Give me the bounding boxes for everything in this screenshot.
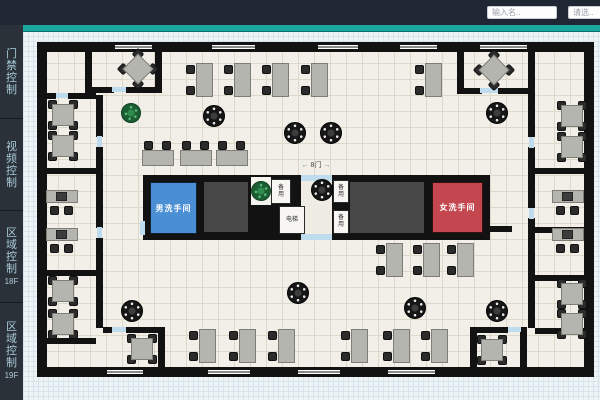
sidebar-item-zone-control-18f[interactable]: 区域控制 18F — [0, 211, 23, 303]
desk — [189, 328, 217, 364]
app-window: 门禁控制 视频控制 区域控制 18F 区域控制 19F 男洗手间 备用 电梯 备… — [0, 0, 600, 400]
chair — [341, 352, 350, 361]
wall — [96, 238, 103, 328]
desk — [186, 62, 214, 98]
door-mark — [97, 227, 102, 238]
chair — [376, 266, 385, 275]
wall — [158, 327, 165, 373]
table-top — [52, 313, 74, 335]
plant — [121, 103, 141, 123]
table-top — [561, 136, 583, 158]
round-table — [486, 300, 508, 322]
door-sign: ← 8门 → — [286, 160, 346, 170]
chair — [556, 206, 565, 215]
wall — [96, 95, 103, 137]
top-header-bar — [0, 0, 600, 25]
door-mark — [97, 136, 102, 147]
square-table — [477, 335, 507, 365]
wall — [47, 168, 96, 174]
mens-restroom-label: 男洗手间 — [151, 183, 196, 233]
chair — [301, 86, 310, 95]
window — [115, 44, 152, 50]
monitor — [562, 192, 573, 201]
chair — [64, 206, 73, 215]
chair — [262, 86, 271, 95]
table-top — [52, 104, 74, 126]
round-table — [320, 122, 342, 144]
wall — [85, 42, 92, 93]
square-table — [557, 132, 587, 162]
chair — [189, 331, 198, 340]
table-top — [278, 329, 295, 363]
table-top — [142, 150, 174, 166]
chair — [301, 65, 310, 74]
desk — [301, 62, 329, 98]
desk — [376, 242, 404, 278]
chair — [162, 141, 171, 150]
chair — [268, 352, 277, 361]
round-table — [486, 102, 508, 124]
table-top — [199, 329, 216, 363]
search-input[interactable] — [487, 6, 557, 19]
table-top — [52, 280, 74, 302]
room-utility-1: 备用 — [271, 179, 291, 204]
chair — [182, 141, 191, 150]
sidebar-item-label: 视频控制 — [6, 141, 18, 189]
pc-desk — [551, 228, 585, 256]
desk — [140, 141, 176, 167]
chair — [186, 65, 195, 74]
wall — [520, 327, 527, 373]
round-table — [121, 300, 143, 322]
wall — [528, 147, 535, 208]
chair — [570, 244, 579, 253]
sidebar-item-label: 区域控制 — [6, 321, 18, 369]
arrow-left-icon: ← — [302, 162, 309, 169]
sidebar-item-label: 门禁控制 — [6, 48, 18, 96]
room-womens-restroom[interactable]: 女洗手间 — [432, 182, 483, 233]
chair — [421, 331, 430, 340]
chair — [556, 244, 565, 253]
chair — [224, 86, 233, 95]
round-table — [284, 122, 306, 144]
table-top — [431, 329, 448, 363]
round-table — [311, 179, 333, 201]
wall — [490, 226, 512, 232]
door-mark — [112, 327, 126, 332]
door-mark — [140, 221, 145, 235]
room-utility-2: 备用 — [333, 180, 349, 203]
window — [208, 369, 250, 375]
utility-label: 备用 — [278, 185, 285, 199]
window — [298, 369, 340, 375]
lobby-door-bottom — [301, 234, 332, 240]
square-table — [557, 279, 587, 309]
chair — [229, 331, 238, 340]
wall — [535, 168, 585, 174]
sidebar-item-access-control[interactable]: 门禁控制 — [0, 25, 23, 119]
table-top — [52, 135, 74, 157]
sidebar-item-video-control[interactable]: 视频控制 — [0, 119, 23, 211]
window — [480, 44, 527, 50]
square-table — [48, 100, 78, 130]
desk — [447, 242, 475, 278]
desk — [383, 328, 411, 364]
square-table — [557, 309, 587, 339]
square-table — [48, 309, 78, 339]
window — [212, 44, 255, 50]
round-table — [404, 297, 426, 319]
chair — [189, 352, 198, 361]
table-top — [561, 313, 583, 335]
chair — [383, 331, 392, 340]
room-core-gray-left — [204, 182, 248, 232]
room-core-gray-right — [350, 182, 424, 233]
chair — [224, 65, 233, 74]
round-table — [287, 282, 309, 304]
chair — [341, 331, 350, 340]
table-top — [423, 243, 440, 277]
table-top — [386, 243, 403, 277]
desk — [214, 141, 250, 167]
table-top — [196, 63, 213, 97]
chair — [144, 141, 153, 150]
door-mark — [56, 93, 68, 98]
sidebar-item-label: 区域控制 — [6, 227, 18, 275]
room-elevator[interactable]: 电梯 — [279, 206, 305, 234]
desk — [224, 62, 252, 98]
square-table — [48, 276, 78, 306]
room-mens-restroom[interactable]: 男洗手间 — [150, 182, 197, 234]
sidebar-item-zone-control-19f[interactable]: 区域控制 19F — [0, 303, 23, 397]
sidebar-item-floor: 19F — [5, 371, 19, 380]
wall — [68, 93, 96, 99]
chair — [376, 245, 385, 254]
womens-restroom-label: 女洗手间 — [433, 183, 482, 232]
table-top — [561, 283, 583, 305]
chair — [186, 86, 195, 95]
wall — [528, 218, 535, 328]
chair — [218, 141, 227, 150]
window — [388, 369, 435, 375]
room-utility-3: 备用 — [333, 210, 349, 234]
chair — [413, 266, 422, 275]
window — [107, 369, 143, 375]
table-top — [481, 339, 503, 361]
wall — [126, 87, 162, 93]
monitor — [562, 230, 573, 239]
arrow-right-icon: → — [323, 162, 330, 169]
door-mark — [529, 208, 534, 219]
window — [400, 44, 437, 50]
table-top — [216, 150, 248, 166]
table-top — [561, 105, 583, 127]
utility-label: 备用 — [338, 185, 345, 199]
desk — [413, 242, 441, 278]
wall — [96, 147, 103, 228]
door-mark — [529, 137, 534, 148]
door-mark — [112, 87, 126, 92]
chair — [447, 266, 456, 275]
table-top — [272, 63, 289, 97]
desk — [268, 328, 296, 364]
select-input[interactable] — [568, 6, 600, 19]
door-sign-text: 8门 — [311, 162, 322, 169]
monitor — [56, 230, 67, 239]
pc-desk — [551, 190, 585, 218]
chair — [415, 65, 424, 74]
table-top — [131, 338, 153, 360]
desk — [415, 62, 443, 98]
chair — [200, 141, 209, 150]
chair — [413, 245, 422, 254]
wall — [528, 42, 535, 137]
pc-desk — [45, 190, 79, 218]
round-table — [203, 105, 225, 127]
chair — [268, 331, 277, 340]
table-top — [425, 63, 442, 97]
chair — [262, 65, 271, 74]
chair — [236, 141, 245, 150]
desk — [262, 62, 290, 98]
elevator-label: 电梯 — [286, 217, 298, 223]
square-table — [557, 101, 587, 131]
table-top — [311, 63, 328, 97]
desk — [421, 328, 449, 364]
table-top — [393, 329, 410, 363]
wall — [457, 88, 482, 94]
wall — [470, 327, 477, 373]
plant — [251, 181, 271, 201]
desk — [229, 328, 257, 364]
table-top — [180, 150, 212, 166]
chair — [229, 352, 238, 361]
chair — [447, 245, 456, 254]
table-top — [457, 243, 474, 277]
chair — [64, 244, 73, 253]
door-mark — [508, 327, 521, 332]
chair — [50, 206, 59, 215]
square-table — [48, 131, 78, 161]
wall — [44, 93, 56, 99]
monitor — [56, 192, 67, 201]
wall — [103, 327, 112, 333]
desk — [178, 141, 214, 167]
table-top — [351, 329, 368, 363]
chair — [415, 86, 424, 95]
table-top — [234, 63, 251, 97]
chair — [50, 244, 59, 253]
square-table — [127, 334, 157, 364]
sidebar-item-floor: 18F — [5, 277, 19, 286]
sidebar: 门禁控制 视频控制 区域控制 18F 区域控制 19F — [0, 25, 23, 400]
utility-label: 备用 — [338, 215, 345, 229]
window — [318, 44, 358, 50]
chair — [570, 206, 579, 215]
chair — [383, 352, 392, 361]
chair — [421, 352, 430, 361]
pc-desk — [45, 228, 79, 256]
wall — [457, 42, 464, 94]
table-top — [239, 329, 256, 363]
desk — [341, 328, 369, 364]
accent-bar — [23, 25, 600, 32]
